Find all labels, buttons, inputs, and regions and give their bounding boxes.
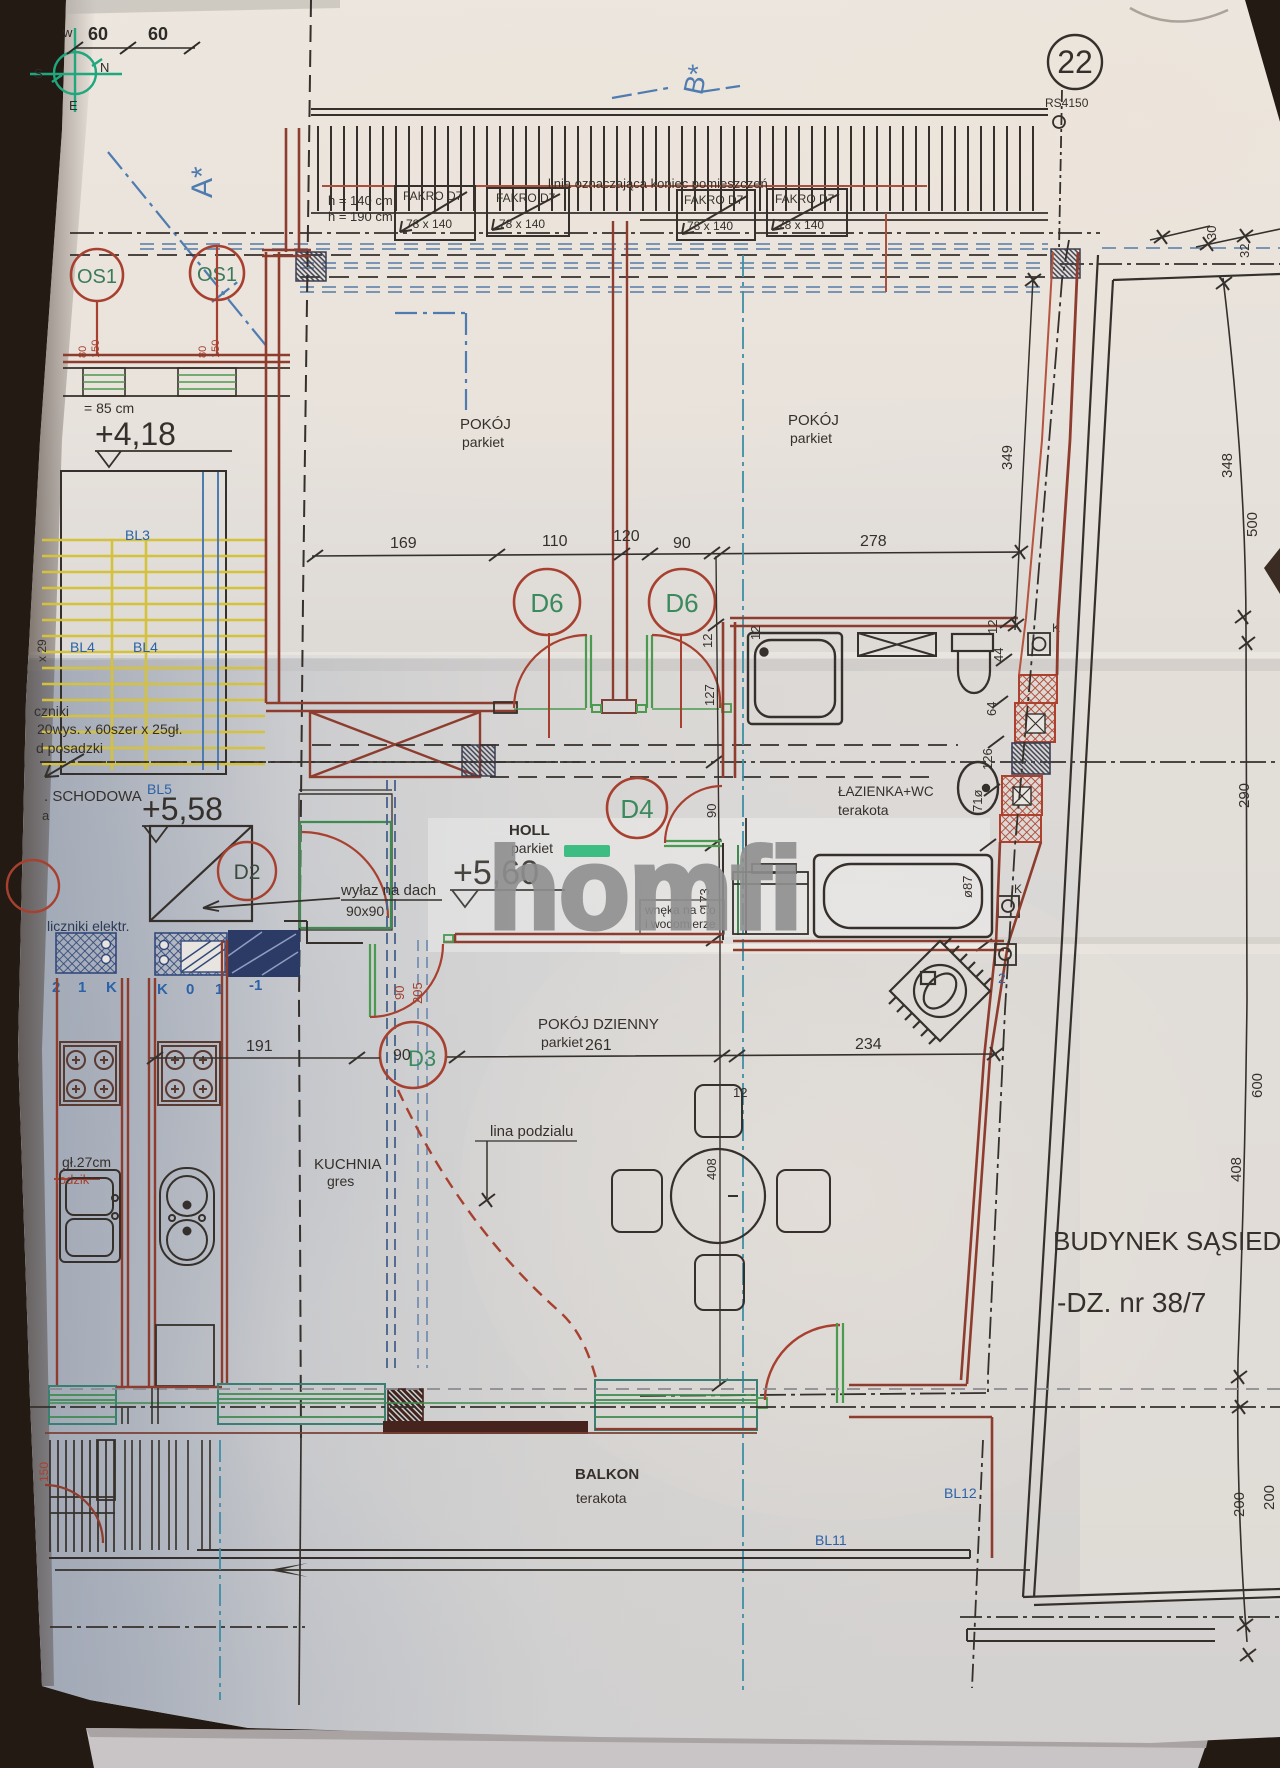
svg-text:ø87: ø87	[960, 876, 975, 898]
svg-text:E: E	[69, 98, 78, 113]
svg-text:gł.27cm: gł.27cm	[62, 1154, 111, 1170]
svg-text:348: 348	[1219, 453, 1236, 478]
svg-text:D6: D6	[665, 588, 698, 618]
svg-text:FAKRO D7: FAKRO D7	[403, 189, 463, 203]
svg-text:w: w	[62, 25, 73, 40]
svg-text:90: 90	[392, 986, 407, 1000]
svg-text:120: 120	[613, 528, 640, 545]
svg-text:D4: D4	[620, 794, 653, 824]
svg-text:78 x 140: 78 x 140	[778, 218, 824, 232]
svg-text:60: 60	[148, 24, 168, 44]
svg-text:200: 200	[1261, 1485, 1278, 1510]
svg-text:408: 408	[704, 1158, 719, 1180]
svg-text:90x90: 90x90	[346, 903, 384, 919]
svg-text:32: 32	[1237, 244, 1252, 258]
svg-text:261: 261	[585, 1037, 612, 1054]
svg-text:78 x 140: 78 x 140	[406, 217, 452, 231]
svg-text:FAKRO D7: FAKRO D7	[496, 191, 556, 205]
svg-text:90: 90	[704, 804, 719, 818]
svg-text:12: 12	[700, 634, 715, 648]
svg-text:parkiet: parkiet	[541, 1034, 583, 1050]
svg-text:ŁAZIENKA+WC: ŁAZIENKA+WC	[838, 784, 934, 799]
svg-text:BL4: BL4	[133, 639, 158, 655]
svg-text:lina podzialu: lina podzialu	[490, 1123, 573, 1140]
svg-text:200: 200	[1231, 1492, 1248, 1517]
svg-text:terakota: terakota	[838, 802, 889, 818]
svg-text:2: 2	[998, 970, 1006, 986]
svg-text:K: K	[1014, 882, 1022, 896]
svg-text:POKÓJ: POKÓJ	[460, 416, 511, 433]
svg-text:linia oznaczająca koniec pomie: linia oznaczająca koniec pomieszczeń	[548, 176, 768, 191]
svg-text:150: 150	[37, 1462, 51, 1482]
svg-text:A*: A*	[186, 166, 219, 198]
svg-text:1: 1	[78, 979, 86, 996]
svg-text:126: 126	[980, 748, 995, 770]
svg-text:a: a	[42, 808, 50, 823]
svg-text:500: 500	[1244, 512, 1261, 537]
svg-text:FAKRO D7: FAKRO D7	[684, 193, 744, 207]
svg-text:FAKRO D7: FAKRO D7	[775, 192, 835, 206]
svg-text:D6: D6	[530, 588, 563, 618]
svg-text:= 85 cm: = 85 cm	[84, 400, 134, 416]
svg-text:KUCHNIA: KUCHNIA	[314, 1156, 382, 1173]
svg-text:gres: gres	[327, 1173, 354, 1189]
svg-text:205: 205	[410, 982, 425, 1004]
svg-text:D2: D2	[234, 861, 261, 884]
svg-text:. SCHODOWA: . SCHODOWA	[44, 788, 142, 805]
svg-text:169: 169	[390, 535, 417, 552]
svg-text:BL4: BL4	[70, 639, 95, 655]
svg-text:71ø: 71ø	[970, 790, 985, 812]
svg-text:S: S	[34, 66, 43, 81]
svg-text:h = 140 cm: h = 140 cm	[328, 193, 393, 208]
svg-text:N: N	[100, 60, 109, 75]
svg-text:BL12: BL12	[944, 1485, 977, 1501]
svg-text:h = 190 cm: h = 190 cm	[328, 209, 393, 224]
svg-text:78 x 140: 78 x 140	[687, 219, 733, 233]
svg-text:278: 278	[860, 533, 887, 550]
svg-text:wyłaz na dach: wyłaz na dach	[340, 882, 436, 899]
svg-text:BALKON: BALKON	[575, 1466, 639, 1483]
svg-text:290: 290	[1236, 783, 1253, 808]
svg-text:30: 30	[1204, 226, 1219, 240]
svg-text:BUDYNEK SĄSIEDNI: BUDYNEK SĄSIEDNI	[1053, 1226, 1280, 1256]
svg-text:K: K	[157, 981, 168, 998]
svg-text:127: 127	[702, 684, 717, 706]
svg-text:600: 600	[1249, 1073, 1266, 1098]
svg-text:+5,58: +5,58	[142, 791, 223, 827]
svg-text:parkiet: parkiet	[790, 430, 832, 446]
svg-text:terakota: terakota	[576, 1490, 627, 1506]
svg-text:+4,18: +4,18	[95, 416, 176, 452]
svg-text:liczniki elektr.: liczniki elektr.	[47, 918, 129, 934]
svg-text:90: 90	[393, 1047, 411, 1064]
svg-text:POKÓJ: POKÓJ	[788, 412, 839, 429]
svg-text:-DZ. nr 38/7: -DZ. nr 38/7	[1057, 1287, 1206, 1318]
svg-text:-1: -1	[249, 977, 262, 994]
svg-text:22: 22	[1057, 44, 1093, 80]
svg-text:90: 90	[673, 535, 691, 552]
svg-text:234: 234	[855, 1036, 882, 1053]
svg-text:78 x 140: 78 x 140	[499, 217, 545, 231]
svg-text:POKÓJ DZIENNY: POKÓJ DZIENNY	[538, 1016, 659, 1033]
svg-text:x 29: x 29	[35, 639, 49, 662]
svg-text:20wys. x 60szer x 25gł.: 20wys. x 60szer x 25gł.	[37, 721, 183, 737]
svg-text:191: 191	[246, 1038, 273, 1055]
svg-text:BL3: BL3	[125, 527, 150, 543]
svg-text:OS1: OS1	[77, 266, 117, 288]
svg-text:12: 12	[985, 620, 1000, 634]
svg-text:d posadzki: d posadzki	[36, 740, 103, 756]
svg-text:60: 60	[88, 24, 108, 44]
svg-text:czniki: czniki	[34, 703, 69, 719]
svg-text:349: 349	[999, 445, 1016, 470]
svg-text:RS4150: RS4150	[1045, 96, 1089, 110]
svg-text:0: 0	[186, 981, 194, 998]
svg-text:110: 110	[542, 533, 568, 550]
svg-text:parkiet: parkiet	[462, 434, 504, 450]
svg-text:BL11: BL11	[815, 1532, 847, 1548]
svg-text:K: K	[106, 979, 117, 996]
svg-text:408: 408	[1228, 1157, 1245, 1182]
svg-text:D3: D3	[408, 1046, 436, 1071]
